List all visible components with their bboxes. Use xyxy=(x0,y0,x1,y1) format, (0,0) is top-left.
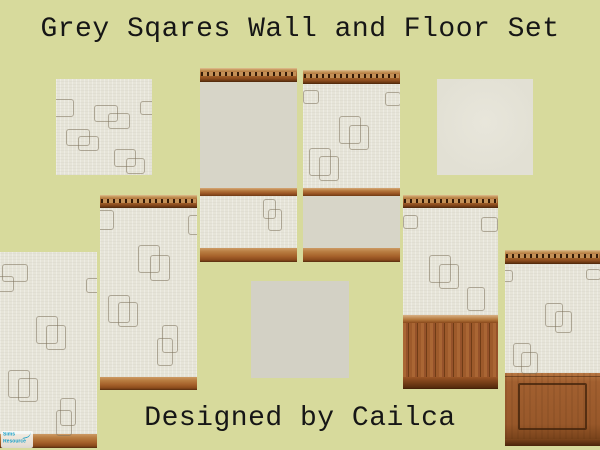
watermark-line-2: Resource xyxy=(3,439,23,444)
square-motif xyxy=(0,276,14,292)
wainscot-base xyxy=(505,439,600,446)
square-motif xyxy=(403,215,418,229)
swatch-floor-plain-grey xyxy=(251,281,349,378)
square-motif xyxy=(268,209,282,231)
square-motif xyxy=(481,217,498,232)
square-motif xyxy=(118,302,138,327)
baseboard xyxy=(100,377,197,390)
crown-molding xyxy=(100,195,197,208)
swatch-floor-plain-cream xyxy=(437,79,533,175)
square-motif xyxy=(108,113,130,129)
swatch-wall-plain-top-squares-bottom xyxy=(200,68,297,262)
dentil-detail xyxy=(506,254,599,258)
square-motif xyxy=(303,90,319,104)
beadboard-wainscot xyxy=(403,315,498,389)
swatch-wall-beadboard-wainscot xyxy=(403,195,498,389)
wainscot-cap-rail xyxy=(403,315,498,323)
square-motif xyxy=(385,92,400,106)
swatch-wall-squares-top-plain-bottom xyxy=(303,70,400,262)
plain-wall-band xyxy=(200,82,297,188)
preview-image: Grey Sqares Wall and Floor Set Designed … xyxy=(0,0,600,450)
square-motif xyxy=(100,210,114,230)
square-motif xyxy=(521,352,538,374)
plain-wall-band xyxy=(303,196,400,248)
tsr-watermark-logo: Sims Resource xyxy=(1,431,33,448)
wainscot-cap-line xyxy=(505,376,600,377)
dentil-detail xyxy=(404,199,497,203)
wallpaper-band xyxy=(100,208,197,377)
square-motif xyxy=(157,338,173,366)
square-motif xyxy=(555,311,572,333)
square-motif xyxy=(18,378,38,402)
dentil-detail xyxy=(101,199,196,203)
square-motif xyxy=(188,215,197,235)
square-motif xyxy=(56,99,74,117)
floor-tile-surface xyxy=(251,281,349,378)
beadboard-planks xyxy=(403,323,498,377)
dentil-detail xyxy=(201,72,296,76)
swatch-floor-textured-squares xyxy=(56,79,152,175)
square-motif xyxy=(349,125,369,150)
square-motif xyxy=(586,269,600,280)
square-motif xyxy=(439,264,459,289)
credit-text: Designed by Cailca xyxy=(0,403,600,435)
crown-molding xyxy=(403,195,498,208)
crown-molding xyxy=(200,68,297,82)
crown-molding xyxy=(505,250,600,264)
square-motif xyxy=(126,158,145,174)
chair-rail xyxy=(303,188,400,196)
square-motif xyxy=(46,325,66,350)
square-motif xyxy=(86,278,97,293)
square-motif xyxy=(140,101,152,115)
chair-rail xyxy=(200,188,297,196)
square-motif xyxy=(150,255,170,281)
crown-molding xyxy=(303,70,400,84)
floor-tile-surface xyxy=(437,79,533,175)
dentil-detail xyxy=(304,74,399,78)
square-motif xyxy=(505,270,513,282)
square-motif xyxy=(78,136,99,151)
square-motif xyxy=(467,287,485,311)
watermark-line-1: Sims xyxy=(3,432,23,437)
swatch-wall-crown-and-baseboard xyxy=(100,195,197,390)
baseboard xyxy=(200,248,297,262)
wainscot-base xyxy=(403,377,498,389)
wallpaper-band xyxy=(200,196,297,248)
square-motif xyxy=(319,156,339,181)
baseboard xyxy=(303,248,400,262)
set-title: Grey Sqares Wall and Floor Set xyxy=(0,14,600,46)
